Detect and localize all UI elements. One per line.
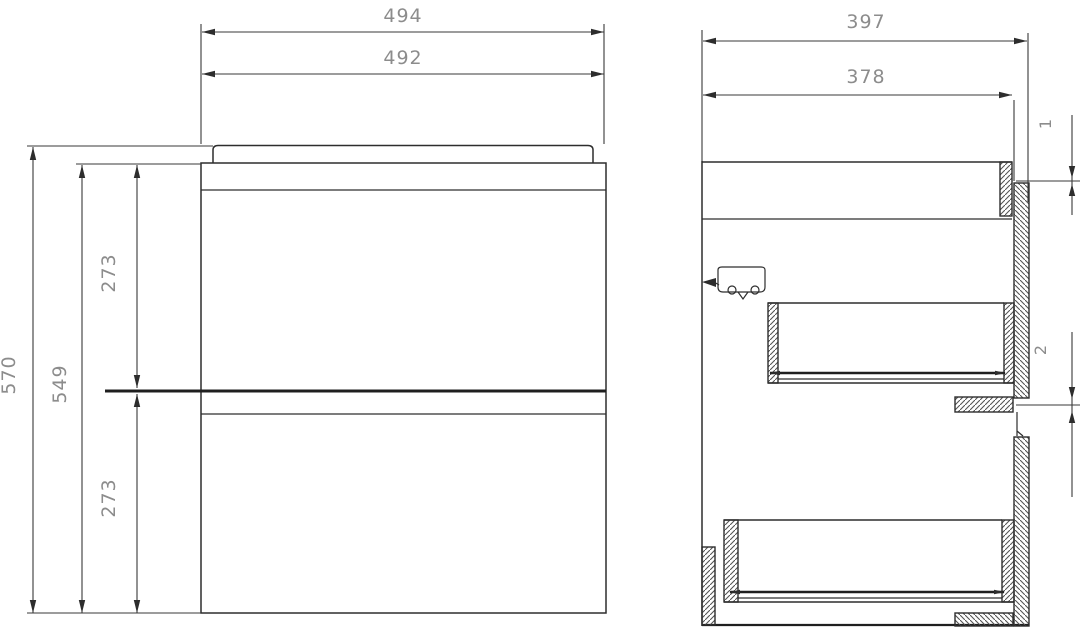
dimension-overall-depth: 397 [702, 11, 1028, 202]
bottom-back-rail-section [955, 613, 1013, 626]
dimension-carcass-depth: 378 [703, 66, 1014, 181]
dim-label-494: 494 [383, 5, 422, 27]
clip-pointer-arrow [702, 278, 716, 287]
cabinet-carcass-outline [201, 163, 606, 613]
back-panel-upper-section [1014, 183, 1029, 398]
lower-drawer-box [724, 520, 1014, 602]
dimension-lower-drawer-height: 273 [98, 394, 140, 613]
top-back-rail-section [1000, 162, 1012, 216]
front-plinth-section [702, 547, 715, 625]
back-shelf-rail-section [955, 397, 1013, 412]
lower-drawer-rail-section [1002, 520, 1014, 602]
countertop-slab [213, 146, 593, 164]
upper-drawer-box [768, 303, 1014, 383]
dim-label-273-upper: 273 [98, 253, 120, 292]
dim-label-273-lower: 273 [98, 478, 120, 517]
dimension-carcass-width: 492 [202, 47, 604, 77]
dim-label-2: 2 [1031, 345, 1050, 355]
dimension-carcass-height: 549 [49, 165, 85, 613]
dimension-overall-height: 570 [0, 146, 213, 613]
back-panel-lower-section [1014, 437, 1029, 626]
drawing-canvas: 494 492 570 549 273 273 [0, 0, 1080, 633]
upper-drawer-rail-section [1004, 303, 1014, 383]
front-view [105, 146, 606, 614]
lower-drawer-back-section [724, 520, 738, 602]
dim-label-492: 492 [383, 47, 422, 69]
dimension-upper-drawer-height: 273 [98, 165, 140, 388]
dim-label-1: 1 [1036, 119, 1055, 129]
back-panel-step-notch [1017, 431, 1023, 436]
mounting-clip-detail [702, 267, 765, 299]
side-view [702, 161, 1029, 626]
dim-label-397: 397 [846, 11, 885, 33]
upper-drawer-back-section [768, 303, 778, 383]
dim-label-378: 378 [846, 66, 885, 88]
vanity-cabinet-technical-drawing: 494 492 570 549 273 273 [0, 0, 1080, 633]
dim-label-549: 549 [49, 364, 71, 403]
dim-label-570: 570 [0, 355, 20, 394]
